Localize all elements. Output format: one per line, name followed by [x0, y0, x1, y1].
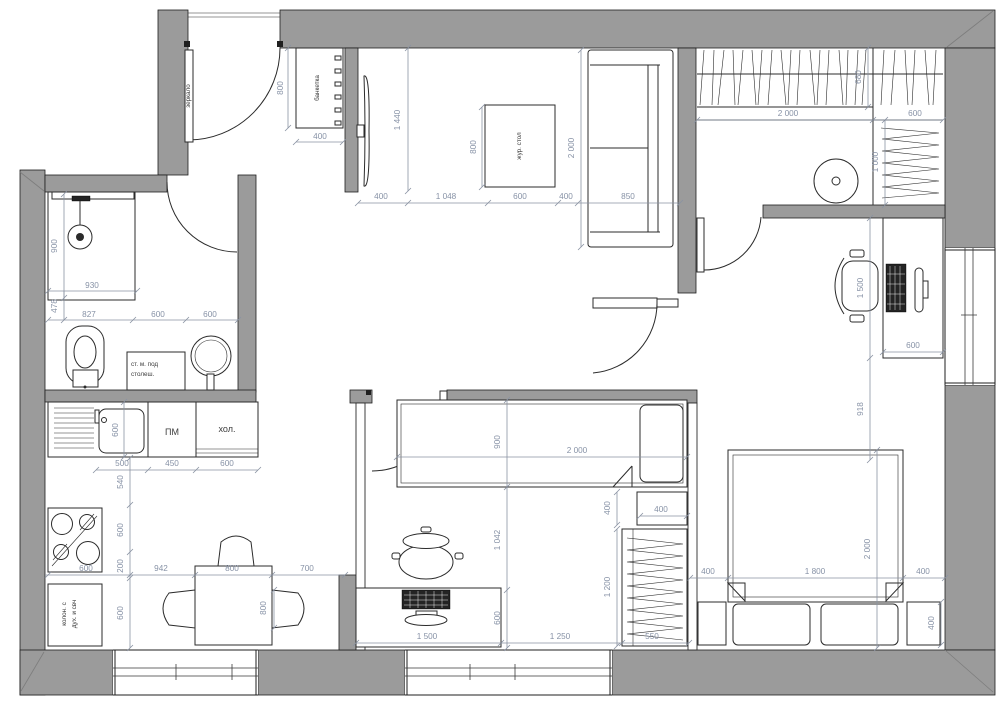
child-room: 900 1 042 600 2 000 400 400 1 200 1 500 … — [353, 397, 692, 651]
dim-label: 600 — [513, 192, 527, 201]
dim-label: 600 — [79, 564, 93, 573]
dim-label: 600 — [908, 109, 922, 118]
floor-plan-canvas: зеркало банкетка 800 400 — [0, 0, 1008, 713]
shelves — [881, 128, 939, 198]
coffee-table-label: жур. стол — [516, 132, 523, 160]
dim-label: 400 — [654, 505, 668, 514]
living-room: жур. стол 1 440 400 1 048 600 400 850 2 … — [355, 45, 683, 250]
master-bedroom: 1 500 600 918 400 1 800 400 2 000 400 — [687, 215, 948, 651]
dim-label: 918 — [856, 402, 865, 416]
kitchen-window — [113, 650, 258, 695]
pillow — [821, 604, 898, 645]
living-room-door — [593, 298, 678, 373]
coffee-table: жур. стол — [485, 105, 555, 187]
sink-unit — [48, 402, 148, 457]
washing-machine-label: ст. м. под — [131, 361, 158, 368]
dim-label: 600 — [151, 310, 165, 319]
master-bedroom-door — [697, 217, 761, 272]
dim-label: 1 250 — [550, 632, 571, 641]
pillow — [733, 604, 810, 645]
dim-label: 600 — [116, 523, 125, 537]
dim-label: 600 — [220, 459, 234, 468]
dim-label: 600 — [203, 310, 217, 319]
dishwasher: ПМ — [148, 402, 196, 457]
toilet — [66, 326, 104, 389]
keyboard — [886, 264, 906, 312]
entry-door — [184, 13, 283, 140]
floor-plan: зеркало банкетка 800 400 — [0, 0, 1008, 713]
washing-machine: ст. м. под столеш. — [127, 352, 185, 390]
wardrobe-room: 2 000 600 680 1 000 — [694, 45, 946, 208]
sofa — [588, 50, 673, 247]
oven-column-label: дух. и свч — [71, 600, 78, 628]
child-wardrobe — [622, 529, 687, 646]
dim-label: 400 — [313, 132, 327, 141]
dim-label: 800 — [259, 601, 268, 615]
monitor-stand — [923, 281, 928, 298]
dim-label: 600 — [493, 611, 502, 625]
dim-label: 800 — [469, 140, 478, 154]
dim-label: 900 — [50, 239, 59, 253]
dim-label: 2 000 — [567, 137, 576, 158]
dim-label: 1 042 — [493, 529, 502, 550]
dim-label: 800 — [276, 81, 285, 95]
dim-label: 850 — [621, 192, 635, 201]
dim-label: 400 — [916, 567, 930, 576]
nightstand-left — [698, 602, 726, 645]
child-master-wall — [688, 403, 697, 650]
entry-hall: зеркало банкетка 800 400 — [185, 45, 346, 145]
dim-label: 930 — [85, 281, 99, 290]
dim-label: 400 — [559, 192, 573, 201]
child-room-window — [405, 650, 612, 695]
chair-right — [272, 590, 304, 628]
dim-label: 550 — [645, 632, 659, 641]
dim-label: 400 — [701, 567, 715, 576]
fridge: хол. — [196, 402, 258, 457]
desk — [883, 218, 943, 358]
dim-label: 600 — [111, 423, 120, 437]
dim-label: 800 — [225, 564, 239, 573]
dim-label: 400 — [374, 192, 388, 201]
bench-label: банкетка — [313, 75, 321, 101]
dim-label: 2 000 — [863, 538, 872, 559]
bathroom-door — [167, 182, 237, 252]
oven-column-label: колон. с — [61, 602, 68, 626]
monitor — [915, 268, 923, 312]
dim-label: 540 — [116, 475, 125, 489]
chair-top — [218, 536, 254, 566]
pouf — [814, 159, 858, 203]
dim-label: 2 000 — [567, 446, 588, 455]
dim-label: 1 048 — [436, 192, 457, 201]
dim-label: 700 — [300, 564, 314, 573]
washbasin — [191, 336, 231, 390]
stove — [48, 508, 102, 572]
dim-label: 450 — [165, 459, 179, 468]
washing-machine-label: столеш. — [131, 371, 155, 378]
dim-label: 478 — [50, 299, 59, 313]
child-chair — [392, 527, 463, 579]
single-bed — [397, 400, 687, 487]
dim-label: 400 — [927, 616, 936, 630]
dim-label: 1 500 — [856, 277, 865, 298]
kitchen: ПМ хол. колон. с дух. и свч 600 50 — [45, 399, 348, 651]
bathroom: ст. м. под столеш. 900 930 478 827 600 6… — [45, 191, 241, 390]
dim-label: 1 440 — [393, 109, 402, 130]
dim-label: 400 — [603, 501, 612, 515]
dim-label: 900 — [493, 435, 502, 449]
dim-label: 2 000 — [778, 109, 799, 118]
dim-label: 600 — [906, 341, 920, 350]
chair-left — [163, 590, 195, 628]
pillow — [640, 405, 683, 482]
dishwasher-label: ПМ — [165, 427, 179, 437]
hanging-clothes — [700, 50, 936, 105]
mirror-label: зеркало — [185, 84, 192, 108]
dim-label: 1 500 — [417, 632, 438, 641]
tv — [357, 76, 369, 186]
oven-column: колон. с дух. и свч — [48, 584, 102, 646]
dim-label: 600 — [116, 606, 125, 620]
dim-label: 1 200 — [603, 576, 612, 597]
dim-label: 680 — [854, 70, 863, 84]
dim-label: 1 800 — [805, 567, 826, 576]
master-window — [945, 248, 995, 385]
dim-label: 942 — [154, 564, 168, 573]
dim-label: 1 000 — [871, 151, 880, 172]
dim-label: 200 — [116, 559, 125, 573]
fridge-label: хол. — [219, 424, 236, 434]
dim-label: 827 — [82, 310, 96, 319]
